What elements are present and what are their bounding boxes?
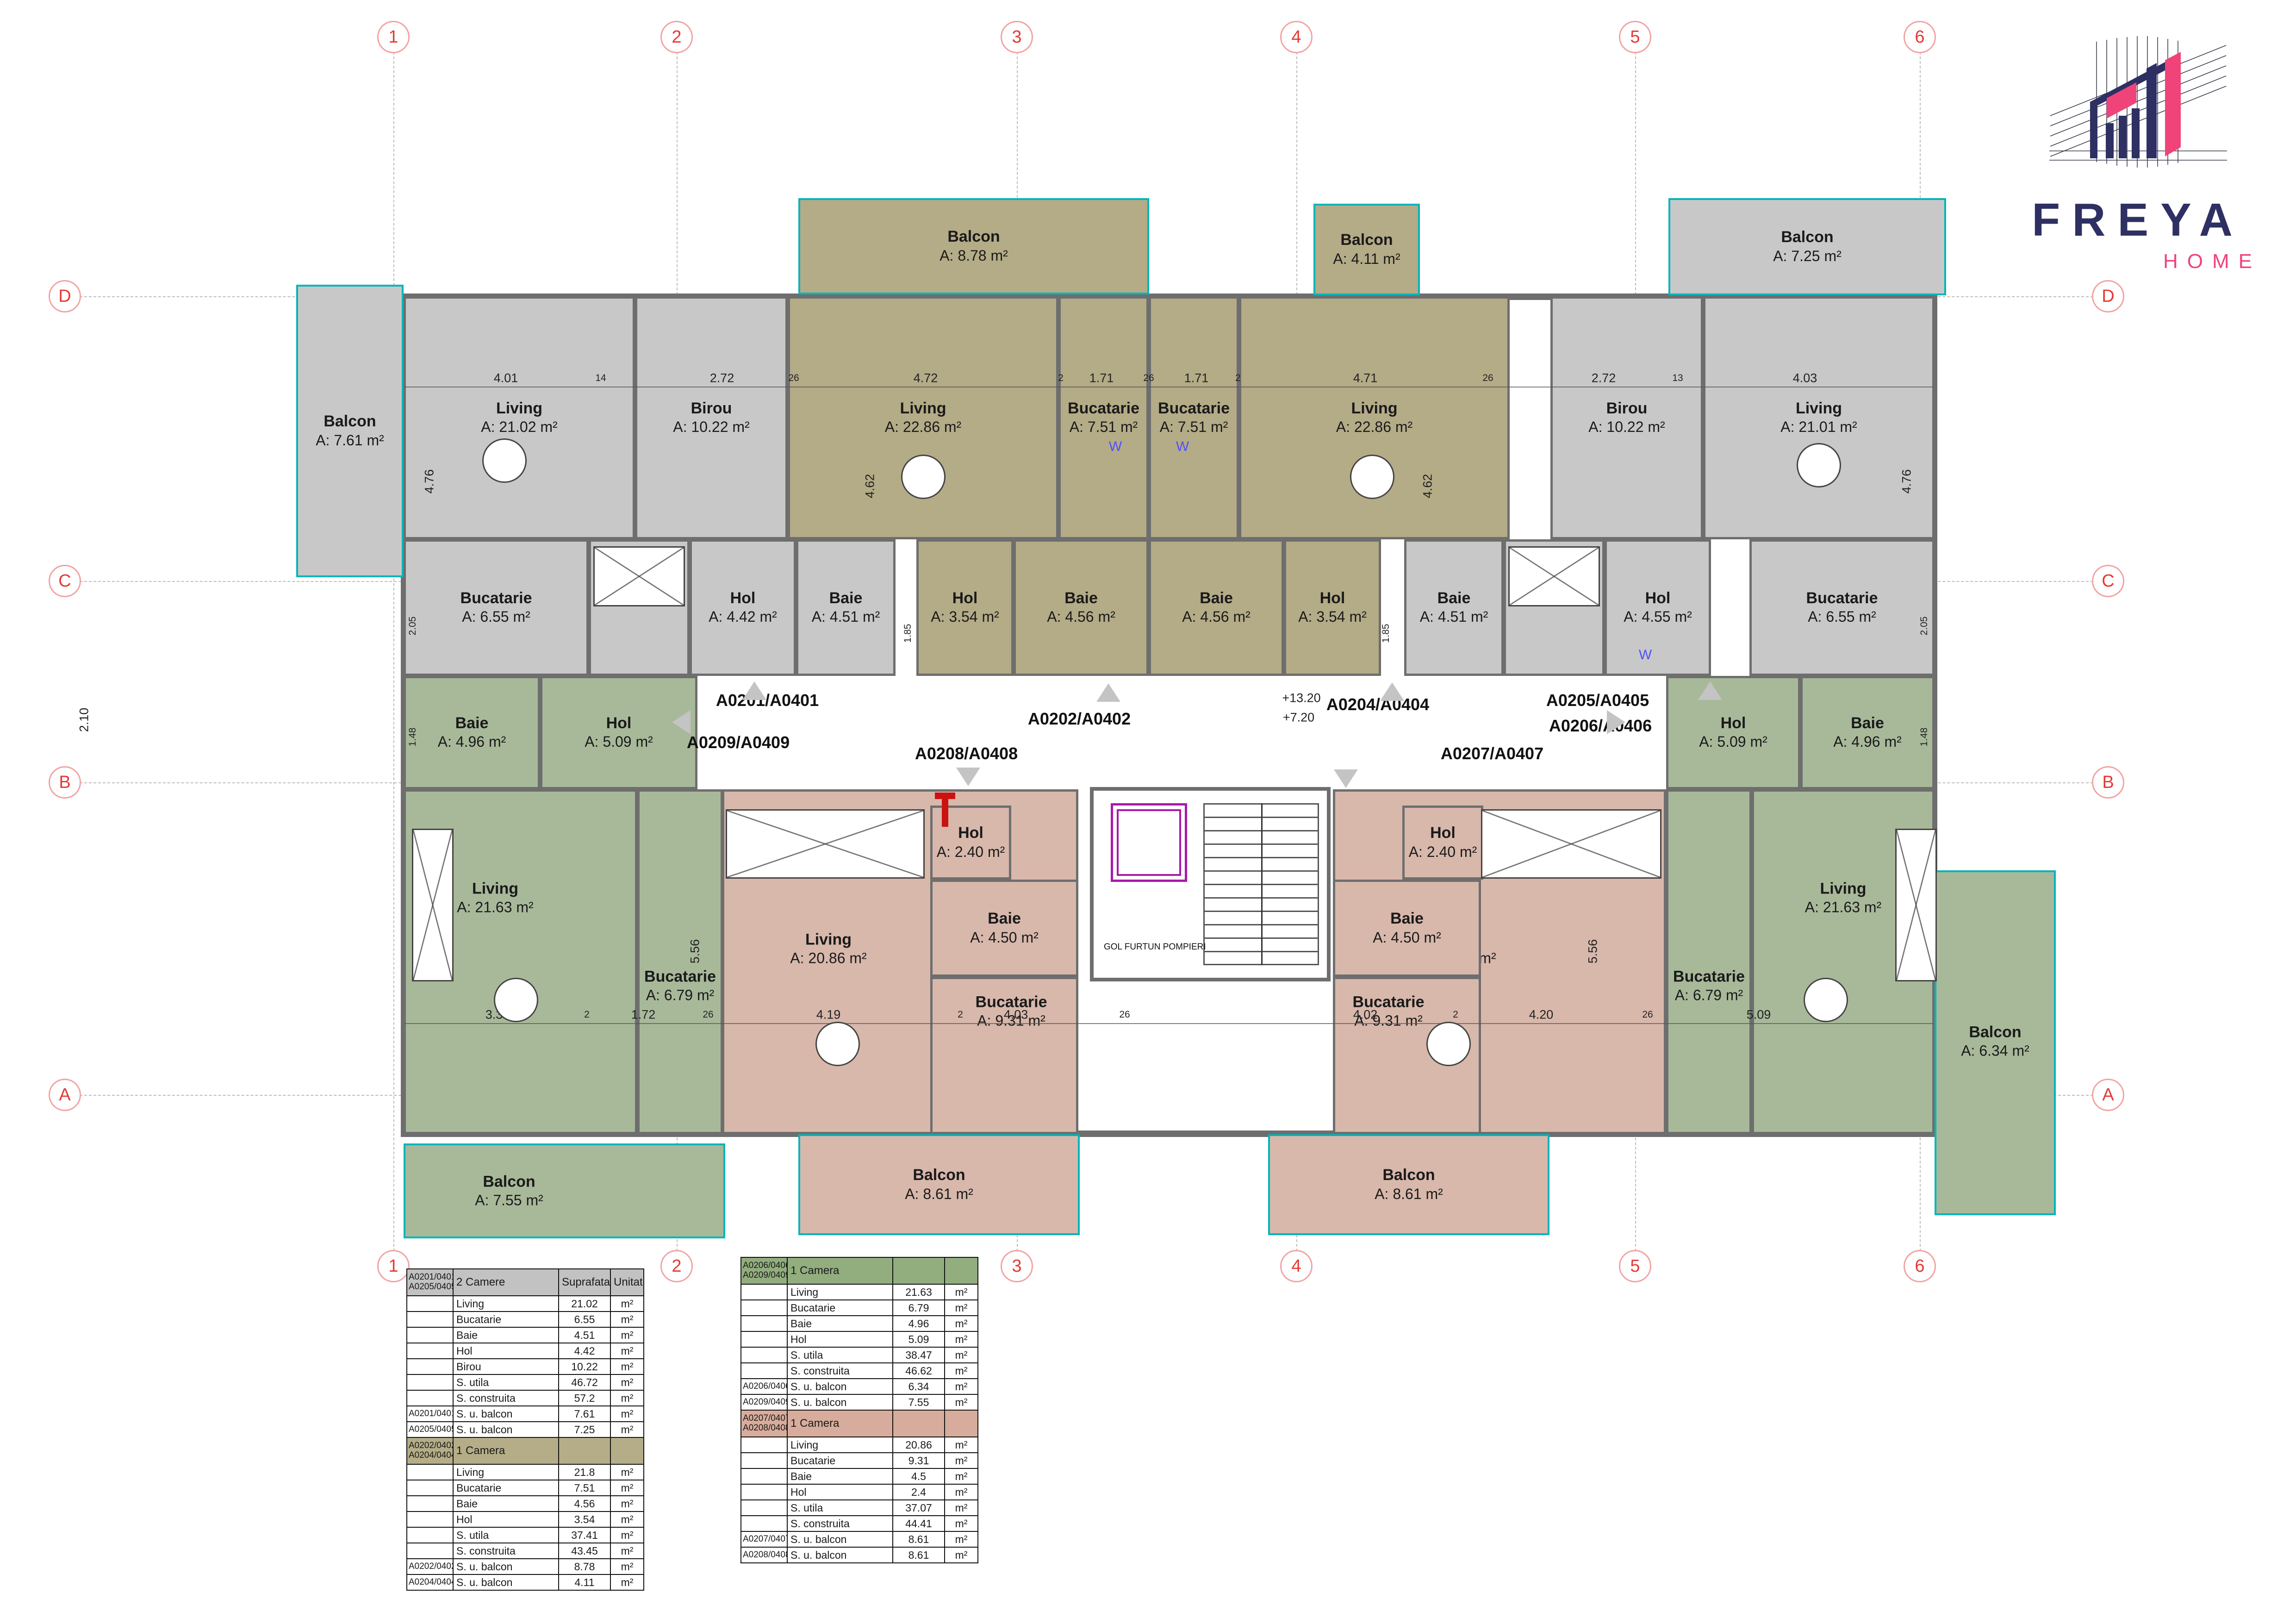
grid-bubble-6: 6 xyxy=(1904,1250,1936,1282)
staircase-center-line xyxy=(1261,803,1263,965)
table-header-cell xyxy=(893,1257,945,1284)
washer-mark: W xyxy=(1639,647,1652,663)
table-cell: m² xyxy=(945,1547,978,1563)
table-header-cell: A0207/0407 A0208/0408 xyxy=(741,1410,787,1437)
table-cell xyxy=(407,1464,453,1480)
room-living: LivingA: 22.86 m² xyxy=(788,296,1058,539)
table-cell: S. u. balcon xyxy=(787,1379,893,1394)
table-cell: A0206/0406 xyxy=(741,1379,787,1394)
apartment-code: A0209/A0409 xyxy=(687,733,790,752)
dimension-text-vertical: 5.56 xyxy=(688,939,703,964)
dimension-text-vertical: 1.85 xyxy=(1381,624,1392,643)
table-cell: m² xyxy=(945,1394,978,1410)
table-cell: 21.8 xyxy=(559,1464,610,1480)
table-header-cell xyxy=(945,1410,978,1437)
dimension-text: 5.09 xyxy=(1747,1008,1771,1022)
floor-plan-sheet: BalconA: 7.61 m²LivingA: 21.02 m²BirouA:… xyxy=(0,0,2296,1624)
apartment-code: A0206/A0406 xyxy=(1549,716,1652,736)
room-baie: BaieA: 4.96 m² xyxy=(1800,676,1935,789)
room-label-hol: HolA: 3.54 m² xyxy=(1298,589,1367,626)
table-cell: m² xyxy=(945,1347,978,1363)
table-cell: 21.02 xyxy=(559,1296,610,1312)
level-mark: +7.20 xyxy=(1283,711,1314,725)
room-label-hol: HolA: 4.55 m² xyxy=(1624,589,1692,626)
dimension-line-top xyxy=(404,387,1934,387)
table-cell: 46.72 xyxy=(559,1374,610,1390)
logo-home-text: HOME xyxy=(2004,250,2261,273)
wardrobe-icon xyxy=(726,809,925,879)
grid-bubble-4: 4 xyxy=(1280,21,1313,53)
table-cell: m² xyxy=(945,1531,978,1547)
room-bucatarie: BucatarieA: 7.51 m² xyxy=(1058,296,1149,539)
table-cell xyxy=(407,1374,453,1390)
table-cell: 57.2 xyxy=(559,1390,610,1406)
table-row: Bucatarie6.55m² xyxy=(407,1312,644,1327)
dimension-text: 1.72 xyxy=(631,1008,656,1022)
table-icon xyxy=(815,1022,860,1066)
table-cell: m² xyxy=(610,1359,644,1374)
room-label-balcon: BalconA: 8.61 m² xyxy=(1375,1166,1443,1203)
table-cell: 37.07 xyxy=(893,1500,945,1516)
dimension-text-vertical: 1.48 xyxy=(1919,728,1930,747)
entrance-arrow-icon xyxy=(1096,683,1120,702)
dimension-text: 1.71 xyxy=(1184,371,1209,386)
room-label-bucatarie: BucatarieA: 6.79 m² xyxy=(644,968,716,1004)
table-cell xyxy=(741,1316,787,1331)
room-hol: HolA: 2.40 m² xyxy=(1402,806,1483,880)
table-icon xyxy=(1804,978,1848,1022)
dimension-text: 26 xyxy=(1482,373,1493,384)
room-label-bucatarie: BucatarieA: 7.51 m² xyxy=(1158,400,1230,436)
table-cell: 20.86 xyxy=(893,1437,945,1453)
table-cell: m² xyxy=(610,1559,644,1574)
table-icon xyxy=(482,438,527,483)
table-icon xyxy=(1426,1022,1471,1066)
table-cell: Birou xyxy=(453,1359,559,1374)
table-row: A0206/0406S. u. balcon6.34m² xyxy=(741,1379,978,1394)
dimension-text: 4.03 xyxy=(1004,1008,1028,1022)
grid-bubble-A: A xyxy=(2092,1079,2124,1111)
table-icon xyxy=(1350,455,1394,499)
room-baie: BaieA: 4.50 m² xyxy=(930,880,1078,977)
table-cell: m² xyxy=(610,1422,644,1437)
table-row: A0202/0402S. u. balcon8.78m² xyxy=(407,1559,644,1574)
room-label-baie: BaieA: 4.56 m² xyxy=(1047,589,1115,626)
room-label-bucatarie: BucatarieA: 6.55 m² xyxy=(1806,589,1878,626)
table-cell: Bucatarie xyxy=(787,1453,893,1468)
table-cell: 8.61 xyxy=(893,1547,945,1563)
dimension-text-vertical: 2.05 xyxy=(1919,617,1930,636)
dimension-text: 26 xyxy=(703,1009,713,1020)
table-header-cell: 2 Camere xyxy=(453,1269,559,1296)
room-label-hol: HolA: 4.42 m² xyxy=(709,589,777,626)
hydrant-icon xyxy=(942,799,948,827)
table-cell: 4.96 xyxy=(893,1316,945,1331)
room-label-living: LivingA: 21.01 m² xyxy=(1780,400,1857,436)
table-cell: A0204/0404 xyxy=(407,1574,453,1590)
table-cell xyxy=(407,1327,453,1343)
table-cell: A0205/0405 xyxy=(407,1422,453,1437)
table-cell: m² xyxy=(945,1500,978,1516)
table-cell: S. u. balcon xyxy=(453,1406,559,1422)
apartment-code: A0202/A0402 xyxy=(1028,709,1131,729)
table-cell xyxy=(741,1331,787,1347)
washer-mark: W xyxy=(1176,439,1189,455)
room-living: LivingA: 22.86 m² xyxy=(1239,296,1510,539)
table-row: Living20.86m² xyxy=(741,1437,978,1453)
area-table-right: A0206/0406 A0209/04091 CameraLiving21.63… xyxy=(740,1257,978,1563)
dimension-text-vertical: 5.56 xyxy=(1586,939,1600,964)
table-row: Hol2.4m² xyxy=(741,1484,978,1500)
balcony-balcon: BalconA: 7.61 m² xyxy=(296,285,404,577)
table-row: A0205/0405S. u. balcon7.25m² xyxy=(407,1422,644,1437)
room-label-hol: HolA: 3.54 m² xyxy=(931,589,999,626)
table-row: S. construita44.41m² xyxy=(741,1516,978,1531)
dimension-text-vertical: 1.48 xyxy=(407,728,418,747)
table-cell: S. construita xyxy=(453,1390,559,1406)
table-cell xyxy=(741,1347,787,1363)
table-cell: Bucatarie xyxy=(453,1480,559,1496)
table-cell: A0201/0401 xyxy=(407,1406,453,1422)
dimension-text: 2.72 xyxy=(710,371,734,386)
table-cell: 4.5 xyxy=(893,1468,945,1484)
apartment-code: A0205/A0405 xyxy=(1546,691,1649,710)
room-hol: HolA: 5.09 m² xyxy=(1666,676,1800,789)
table-cell xyxy=(741,1437,787,1453)
table-cell xyxy=(741,1284,787,1300)
table-row: Baie4.56m² xyxy=(407,1496,644,1512)
table-header-cell xyxy=(893,1410,945,1437)
table-cell xyxy=(741,1453,787,1468)
table-cell: A0207/0407 xyxy=(741,1531,787,1547)
room-label-living: LivingA: 22.86 m² xyxy=(1336,400,1412,436)
grid-bubble-3: 3 xyxy=(1001,21,1033,53)
table-cell: Living xyxy=(453,1296,559,1312)
table-cell xyxy=(407,1512,453,1527)
apartment-code: A0201/A0401 xyxy=(716,691,819,710)
table-cell: S. construita xyxy=(787,1363,893,1379)
room-label-hol: HolA: 5.09 m² xyxy=(1699,714,1767,751)
logo-building-icon xyxy=(2046,32,2231,185)
table-cell xyxy=(407,1312,453,1327)
table-cell: m² xyxy=(945,1484,978,1500)
table-row: Bucatarie9.31m² xyxy=(741,1453,978,1468)
room-label-baie: BaieA: 4.50 m² xyxy=(970,910,1039,946)
room-label-balcon: BalconA: 6.34 m² xyxy=(1961,1023,2029,1060)
table-cell: S. u. balcon xyxy=(453,1559,559,1574)
balcony-balcon: BalconA: 8.61 m² xyxy=(1268,1134,1549,1235)
table-row: Baie4.96m² xyxy=(741,1316,978,1331)
room-baie: BaieA: 4.56 m² xyxy=(1014,539,1149,676)
dimension-text: 26 xyxy=(1642,1009,1653,1020)
table-header-cell: A0201/0401 A0205/0405 xyxy=(407,1269,453,1296)
grid-bubble-5: 5 xyxy=(1619,21,1651,53)
table-cell: 4.56 xyxy=(559,1496,610,1512)
dimension-text-vertical: 2.10 xyxy=(77,708,92,732)
level-mark: +13.20 xyxy=(1282,691,1320,706)
wardrobe-icon xyxy=(412,829,454,981)
table-cell: 4.51 xyxy=(559,1327,610,1343)
wardrobe-icon xyxy=(1508,546,1600,606)
grid-bubble-A: A xyxy=(49,1079,81,1111)
grid-bubble-B: B xyxy=(2092,766,2124,799)
balcony-balcon xyxy=(404,1143,725,1238)
dimension-text: 2 xyxy=(584,1009,590,1020)
table-cell: 7.61 xyxy=(559,1406,610,1422)
dimension-line-bottom xyxy=(404,1023,1934,1024)
room-hol: HolA: 4.55 m² xyxy=(1605,539,1711,676)
table-section-header: A0207/0407 A0208/04081 Camera xyxy=(741,1410,978,1437)
table-cell xyxy=(741,1468,787,1484)
grid-bubble-C: C xyxy=(49,565,81,597)
table-row: Baie4.51m² xyxy=(407,1327,644,1343)
table-cell: 37.41 xyxy=(559,1527,610,1543)
dimension-text: 4.20 xyxy=(1529,1008,1554,1022)
wardrobe-icon xyxy=(1481,809,1661,879)
table-cell xyxy=(741,1484,787,1500)
table-row: Birou10.22m² xyxy=(407,1359,644,1374)
table-header-cell: Unitate xyxy=(610,1269,644,1296)
table-cell: 4.42 xyxy=(559,1343,610,1359)
table-cell: m² xyxy=(945,1316,978,1331)
room-bucatarie: BucatarieA: 6.55 m² xyxy=(1749,539,1935,676)
table-icon xyxy=(494,978,538,1022)
entrance-arrow-icon xyxy=(1380,682,1404,701)
table-cell: 44.41 xyxy=(893,1516,945,1531)
table-section-header: A0206/0406 A0209/04091 Camera xyxy=(741,1257,978,1284)
table-cell: S. utila xyxy=(787,1500,893,1516)
room-baie: BaieA: 4.56 m² xyxy=(1149,539,1284,676)
table-header-cell: 1 Camera xyxy=(453,1437,559,1464)
table-cell: Baie xyxy=(787,1316,893,1331)
table-cell: m² xyxy=(945,1379,978,1394)
room-label-hol: HolA: 2.40 m² xyxy=(937,824,1005,861)
apartment-code: A0207/A0407 xyxy=(1441,744,1543,763)
table-cell: S. u. balcon xyxy=(787,1531,893,1547)
grid-bubble-C: C xyxy=(2092,565,2124,597)
table-icon xyxy=(901,455,946,499)
grid-bubble-1: 1 xyxy=(377,1250,410,1282)
freya-home-logo: FREYA HOME xyxy=(2004,32,2272,292)
wardrobe-icon xyxy=(593,546,685,606)
dimension-text: 4.19 xyxy=(816,1008,841,1022)
room-label-balcon: BalconA: 7.25 m² xyxy=(1773,228,1842,265)
table-cell: S. utila xyxy=(453,1374,559,1390)
dimension-text: 4.01 xyxy=(494,371,518,386)
dimension-text: 14 xyxy=(595,373,606,384)
table-header-cell: A0206/0406 A0209/0409 xyxy=(741,1257,787,1284)
table-icon xyxy=(1797,443,1841,487)
table-cell: S. construita xyxy=(787,1516,893,1531)
table-cell: Hol xyxy=(453,1343,559,1359)
table-cell: m² xyxy=(610,1512,644,1527)
table-cell: Baie xyxy=(453,1327,559,1343)
table-cell: S. u. balcon xyxy=(787,1394,893,1410)
table-row: S. utila46.72m² xyxy=(407,1374,644,1390)
table-cell: 43.45 xyxy=(559,1543,610,1559)
room-label-hol: HolA: 5.09 m² xyxy=(585,714,653,751)
table-cell xyxy=(741,1363,787,1379)
table-cell: Living xyxy=(453,1464,559,1480)
balcony-balcon: BalconA: 8.78 m² xyxy=(798,198,1149,294)
room-label-living: LivingA: 22.86 m² xyxy=(885,400,961,436)
table-row: Bucatarie7.51m² xyxy=(407,1480,644,1496)
table-cell: m² xyxy=(610,1374,644,1390)
grid-bubble-1: 1 xyxy=(377,21,410,53)
room-baie: BaieA: 4.51 m² xyxy=(796,539,896,676)
table-row: A0209/0409S. u. balcon7.55m² xyxy=(741,1394,978,1410)
grid-bubble-6: 6 xyxy=(1904,21,1936,53)
table-section-header: A0201/0401 A0205/04052 CamereSuprafataUn… xyxy=(407,1269,644,1296)
apartment-code: A0208/A0408 xyxy=(915,744,1018,763)
grid-bubble-4: 4 xyxy=(1280,1250,1313,1282)
table-row: A0207/0407S. u. balcon8.61m² xyxy=(741,1531,978,1547)
table-row: S. construita43.45m² xyxy=(407,1543,644,1559)
table-cell xyxy=(407,1296,453,1312)
dimension-text: 4.03 xyxy=(1793,371,1817,386)
table-header-cell: Suprafata xyxy=(559,1269,610,1296)
room-label-bucatarie: BucatarieA: 6.79 m² xyxy=(1673,968,1745,1004)
table-cell xyxy=(407,1359,453,1374)
table-header-cell xyxy=(610,1437,644,1464)
table-cell: Hol xyxy=(787,1484,893,1500)
table-row: A0201/0401S. u. balcon7.61m² xyxy=(407,1406,644,1422)
table-cell: m² xyxy=(945,1331,978,1347)
dimension-text-vertical: 4.76 xyxy=(1900,469,1914,494)
table-cell: Hol xyxy=(787,1331,893,1347)
table-header-cell: A0202/0402 A0204/0404 xyxy=(407,1437,453,1464)
entrance-arrow-icon xyxy=(1698,681,1722,700)
table-row: Living21.63m² xyxy=(741,1284,978,1300)
room-label-birou: BirouA: 10.22 m² xyxy=(673,400,749,436)
table-cell: S. construita xyxy=(453,1543,559,1559)
table-row: S. utila38.47m² xyxy=(741,1347,978,1363)
balcony-balcon: BalconA: 4.11 m² xyxy=(1313,204,1420,295)
dimension-text: 2 xyxy=(958,1009,963,1020)
washer-mark: W xyxy=(1109,439,1122,455)
table-cell: Hol xyxy=(453,1512,559,1527)
table-cell: 4.11 xyxy=(559,1574,610,1590)
balcony-balcon: BalconA: 8.61 m² xyxy=(798,1134,1080,1235)
table-cell: m² xyxy=(610,1296,644,1312)
room-label-balcon: BalconA: 8.78 m² xyxy=(940,228,1008,264)
table-header-cell xyxy=(945,1257,978,1284)
room-baie: BaieA: 4.96 m² xyxy=(404,676,540,789)
area-table-left: A0201/0401 A0205/04052 CamereSuprafataUn… xyxy=(406,1268,644,1591)
table-cell: S. u. balcon xyxy=(453,1422,559,1437)
table-cell: 21.63 xyxy=(893,1284,945,1300)
table-cell: S. u. balcon xyxy=(787,1547,893,1563)
table-cell: 7.51 xyxy=(559,1480,610,1496)
room-label-baie: BaieA: 4.51 m² xyxy=(812,589,880,626)
dimension-text-vertical: 1.85 xyxy=(902,624,914,643)
table-cell xyxy=(407,1343,453,1359)
fire-hose-note: GOL FURTUN POMPIERI xyxy=(1104,942,1206,952)
room-label-bucatarie: BucatarieA: 6.55 m² xyxy=(460,589,532,626)
dimension-text-vertical: 2.05 xyxy=(407,617,418,636)
grid-bubble-2: 2 xyxy=(660,21,693,53)
room-label-hol: HolA: 2.40 m² xyxy=(1409,824,1477,861)
dimension-text: 26 xyxy=(1119,1009,1130,1020)
room-hol: HolA: 4.42 m² xyxy=(690,539,796,676)
table-row: Living21.02m² xyxy=(407,1296,644,1312)
room-bucatarie: BucatarieA: 6.55 m² xyxy=(404,539,589,676)
table-row: Baie4.5m² xyxy=(741,1468,978,1484)
dimension-text: 26 xyxy=(1143,373,1154,384)
table-header-cell xyxy=(559,1437,610,1464)
table-row: Bucatarie6.79m² xyxy=(741,1300,978,1316)
grid-line-col-1 xyxy=(393,52,394,1251)
table-cell xyxy=(407,1543,453,1559)
table-cell: 10.22 xyxy=(559,1359,610,1374)
table-cell: A0202/0402 xyxy=(407,1559,453,1574)
entrance-arrow-icon xyxy=(1334,769,1358,788)
table-cell: 8.78 xyxy=(559,1559,610,1574)
table-cell xyxy=(407,1480,453,1496)
table-cell xyxy=(741,1300,787,1316)
dimension-text: 4.72 xyxy=(914,371,938,386)
table-cell: Baie xyxy=(787,1468,893,1484)
table-cell: m² xyxy=(610,1527,644,1543)
table-section-header: A0202/0402 A0204/04041 Camera xyxy=(407,1437,644,1464)
dimension-text: 2 xyxy=(1453,1009,1458,1020)
table-row: Living21.8m² xyxy=(407,1464,644,1480)
table-row: S. utila37.41m² xyxy=(407,1527,644,1543)
room-label-balcon: BalconA: 7.55 m² xyxy=(475,1173,543,1209)
table-cell: m² xyxy=(945,1437,978,1453)
table-cell: S. u. balcon xyxy=(453,1574,559,1590)
plan-layer: BalconA: 7.61 m²LivingA: 21.02 m²BirouA:… xyxy=(0,0,2296,1624)
dimension-text-vertical: 4.62 xyxy=(1421,474,1435,499)
table-cell: 7.55 xyxy=(893,1394,945,1410)
table-cell: 2.4 xyxy=(893,1484,945,1500)
table-cell: m² xyxy=(610,1312,644,1327)
table-cell: Baie xyxy=(453,1496,559,1512)
room-hol: HolA: 3.54 m² xyxy=(1284,539,1381,676)
table-cell: m² xyxy=(610,1480,644,1496)
table-cell: A0209/0409 xyxy=(741,1394,787,1410)
dimension-text-vertical: 4.76 xyxy=(423,469,437,494)
table-cell: Bucatarie xyxy=(453,1312,559,1327)
grid-bubble-2: 2 xyxy=(660,1250,693,1282)
room-living: LivingA: 21.01 m² xyxy=(1703,296,1935,539)
table-cell xyxy=(407,1527,453,1543)
table-cell: 38.47 xyxy=(893,1347,945,1363)
room-bucatarie: BucatarieA: 7.51 m² xyxy=(1149,296,1239,539)
table-cell: 6.34 xyxy=(893,1379,945,1394)
dimension-text: 2 xyxy=(1058,373,1064,384)
dimension-text: 1.71 xyxy=(1089,371,1114,386)
table-cell: 7.25 xyxy=(559,1422,610,1437)
table-cell: 8.61 xyxy=(893,1531,945,1547)
room-label-baie: BaieA: 4.50 m² xyxy=(1373,910,1441,946)
room-birou: BirouA: 10.22 m² xyxy=(635,296,788,539)
dimension-text: 26 xyxy=(788,373,799,384)
room-label-living: LivingA: 21.63 m² xyxy=(457,880,533,916)
grid-bubble-D: D xyxy=(49,280,81,312)
table-row: A0208/0408S. u. balcon8.61m² xyxy=(741,1547,978,1563)
table-row: Hol5.09m² xyxy=(741,1331,978,1347)
dimension-text: 13 xyxy=(1672,373,1683,384)
table-row: S. construita57.2m² xyxy=(407,1390,644,1406)
room-bucatarie xyxy=(637,789,723,1134)
table-cell: 3.54 xyxy=(559,1512,610,1527)
room-label-balcon: BalconA: 8.61 m² xyxy=(905,1166,973,1203)
table-cell: m² xyxy=(610,1343,644,1359)
table-cell: m² xyxy=(610,1496,644,1512)
table-cell: m² xyxy=(610,1406,644,1422)
apartment-code: A0204/A0404 xyxy=(1326,695,1429,714)
